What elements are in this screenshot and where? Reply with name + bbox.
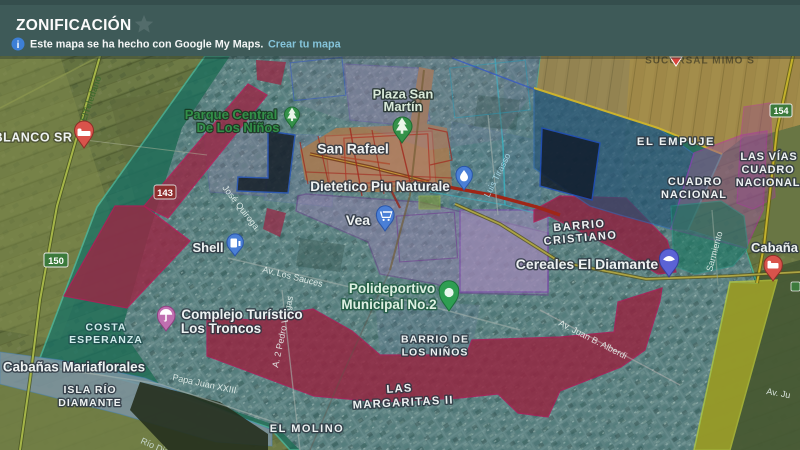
svg-text:Martín: Martín	[384, 99, 423, 114]
svg-text:ISLA RÍO: ISLA RÍO	[63, 383, 116, 396]
svg-text:Municipal No.2: Municipal No.2	[341, 297, 436, 312]
svg-text:154: 154	[773, 106, 788, 116]
svg-text:EL MOLINO: EL MOLINO	[270, 423, 344, 435]
svg-text:Polideportivo: Polideportivo	[349, 281, 435, 296]
svg-text:Complejo Turístico: Complejo Turístico	[181, 307, 302, 322]
svg-text:Este mapa se ha hecho con Goog: Este mapa se ha hecho con Google My Maps…	[30, 39, 263, 51]
svg-text:ESPERANZA: ESPERANZA	[69, 334, 143, 346]
svg-text:LOS NIÑOS: LOS NIÑOS	[402, 346, 469, 359]
svg-text:i: i	[17, 40, 20, 51]
svg-text:Dietetico Piu Naturale: Dietetico Piu Naturale	[310, 179, 450, 194]
svg-text:BLANCO SR: BLANCO SR	[0, 131, 72, 145]
svg-text:NACIONAL: NACIONAL	[736, 177, 800, 189]
svg-text:CUADRO: CUADRO	[741, 164, 794, 176]
svg-text:EL EMPUJE: EL EMPUJE	[637, 136, 715, 148]
svg-text:Crear tu mapa: Crear tu mapa	[268, 39, 342, 51]
svg-text:Los Troncos: Los Troncos	[181, 321, 261, 336]
svg-text:COSTA: COSTA	[86, 322, 127, 334]
svg-text:150: 150	[48, 256, 64, 267]
svg-text:ZONIFICACIÓN: ZONIFICACIÓN	[16, 16, 132, 34]
svg-text:Cabañas Mariaflorales: Cabañas Mariaflorales	[3, 360, 145, 375]
svg-text:De Los Niños: De Los Niños	[196, 120, 279, 135]
svg-text:BARRIO DE: BARRIO DE	[401, 334, 469, 346]
svg-text:Vea: Vea	[346, 212, 370, 228]
svg-text:San Rafael: San Rafael	[317, 141, 389, 157]
svg-text:LAS VÍAS: LAS VÍAS	[740, 150, 797, 163]
svg-text:DIAMANTE: DIAMANTE	[58, 397, 121, 409]
svg-text:LAS: LAS	[386, 382, 413, 395]
svg-text:Shell: Shell	[192, 240, 223, 255]
svg-text:NACIONAL: NACIONAL	[661, 189, 727, 201]
svg-text:Cereales El Diamante: Cereales El Diamante	[516, 256, 659, 272]
svg-text:143: 143	[157, 188, 173, 199]
svg-text:Cabaña: Cabaña	[751, 240, 799, 255]
svg-text:CUADRO: CUADRO	[668, 176, 722, 188]
